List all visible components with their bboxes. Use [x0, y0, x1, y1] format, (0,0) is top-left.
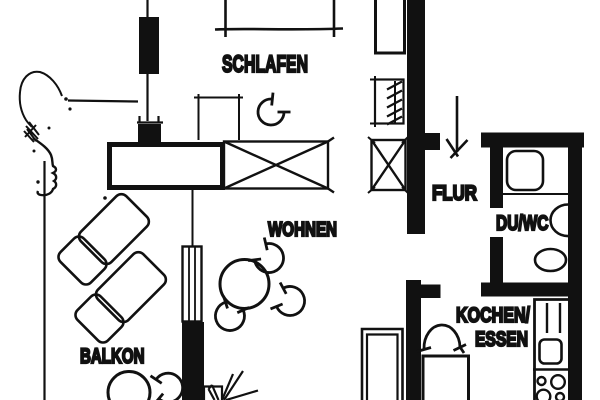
svg-text:BALKON: BALKON	[80, 345, 145, 368]
svg-text:ESSEN: ESSEN	[475, 327, 528, 351]
svg-text:WOHNEN: WOHNEN	[268, 218, 337, 241]
svg-text:FLUR: FLUR	[432, 181, 477, 205]
svg-text:SCHLAFEN: SCHLAFEN	[222, 51, 308, 78]
svg-text:KOCHEN/: KOCHEN/	[456, 303, 530, 327]
svg-text:DU/WC: DU/WC	[496, 211, 549, 235]
